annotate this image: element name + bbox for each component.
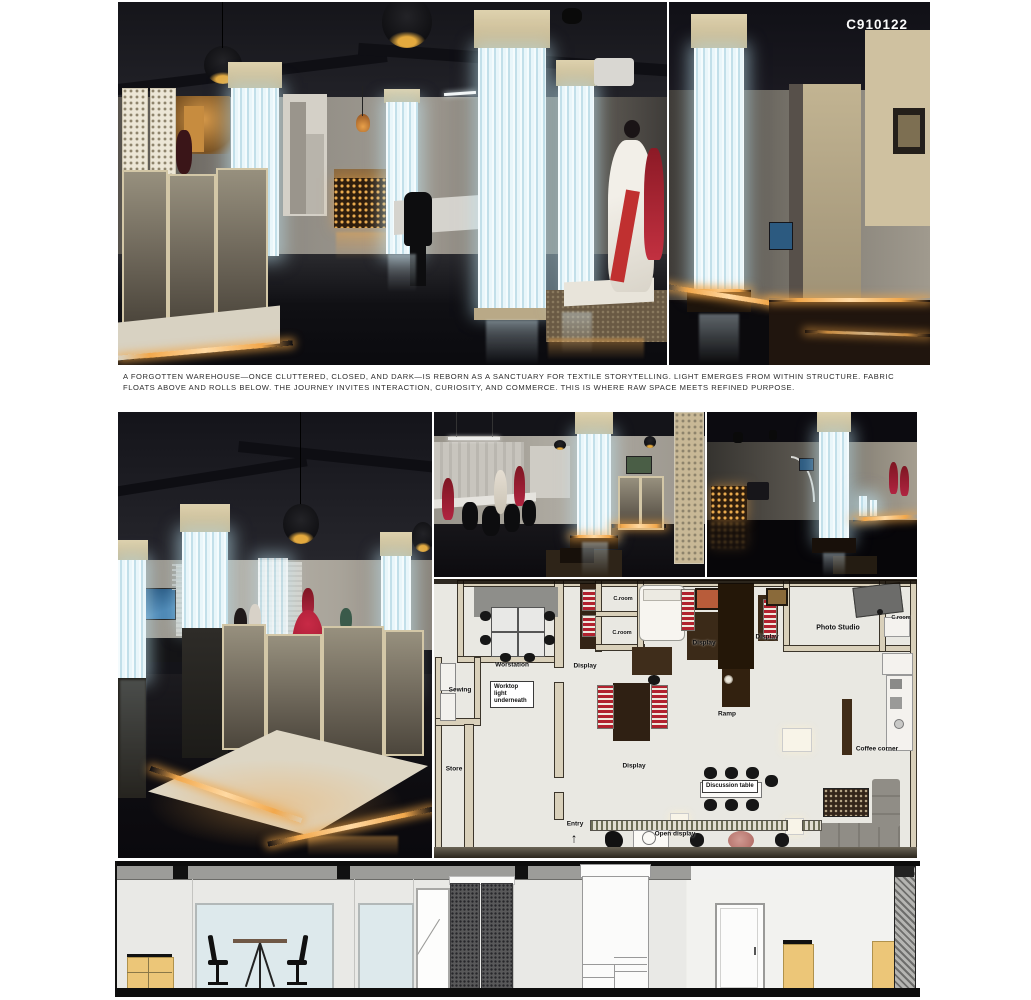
light-column (118, 560, 146, 678)
red-mannequin (889, 462, 898, 494)
catwalk-floor (613, 683, 650, 741)
wall-croom-left (596, 581, 601, 651)
ceiling (434, 412, 705, 436)
jali-screen-panel (450, 883, 480, 991)
chair (544, 611, 555, 621)
office-chair-silhouette (285, 935, 309, 989)
spotlight-icon (769, 430, 777, 440)
column-cap (180, 504, 230, 532)
mirror-door (416, 888, 450, 993)
corridor (306, 134, 324, 214)
project-code: C910122 (846, 17, 908, 32)
photo-middle-right (707, 412, 917, 577)
wood-cabinet (127, 957, 174, 991)
plan-label-croom-3: C.room (891, 615, 910, 621)
office-chair (522, 500, 536, 526)
picture-art (898, 115, 920, 147)
plan-label-croom-1: C.room (613, 596, 632, 602)
warm-reflection (548, 338, 644, 360)
wardrobe (582, 876, 649, 991)
garment-rack (582, 615, 596, 637)
plan-label-croom-2: C.room (612, 630, 631, 636)
glass-display-unit (216, 168, 268, 326)
jali-panel (150, 88, 176, 176)
column-reflection (823, 553, 845, 577)
column-plinth (474, 308, 550, 320)
wall-croom-div (596, 612, 642, 616)
photo-middle-left (118, 412, 432, 858)
framed-picture (626, 456, 652, 474)
photo-top-right: C910122 (669, 2, 930, 365)
wall-hall-2 (555, 683, 563, 777)
wall-joint-line (354, 879, 355, 989)
office-chair (462, 502, 478, 530)
plan-label-ramp: Ramp (718, 711, 736, 718)
chair (704, 799, 717, 811)
lamp-wire (456, 412, 457, 437)
garment-rack (582, 589, 596, 611)
sewing-table (440, 693, 456, 721)
wardrobe-divider (614, 964, 615, 989)
office-chair-silhouette (208, 935, 232, 989)
plan-label-store: Store (446, 766, 463, 773)
chair-pole (296, 965, 299, 982)
beam-block (173, 866, 188, 879)
column-cap (118, 540, 148, 560)
office-chair (404, 192, 432, 246)
appliance (890, 679, 902, 689)
caption-line-2: FLOATS ABOVE AND ROLLS BELOW. THE JOURNE… (123, 383, 795, 392)
wall-store-right (465, 725, 473, 851)
ramp-runway (718, 583, 754, 669)
chair (704, 767, 717, 779)
ramp-logo (724, 675, 733, 684)
chair (725, 767, 738, 779)
beige-partition (803, 84, 861, 334)
chair (765, 775, 778, 787)
column-cap (691, 14, 747, 48)
chair-back (299, 935, 309, 963)
plan-label-display-3: Display (755, 634, 778, 641)
lamp-cable (300, 412, 301, 506)
linear-lamp (448, 437, 500, 440)
jali-panel (122, 88, 148, 176)
floor-slab (115, 988, 920, 997)
garment-rack (597, 685, 614, 729)
table-pole (259, 943, 261, 989)
wall-workstation-left (458, 581, 463, 662)
warm-reflection (308, 836, 398, 856)
plan-label-worktop: Worktop light underneath (490, 681, 534, 708)
floor-plan-render: Worstation Display C.room C.room Display… (434, 579, 917, 858)
light-column (577, 434, 611, 538)
garment-rack (651, 685, 668, 729)
light-column (258, 558, 288, 634)
platform-edge-glow (769, 298, 930, 302)
white-sari-mannequin (494, 470, 507, 514)
chair (544, 635, 555, 645)
photo-middle-center (434, 412, 705, 577)
mannequin-hair (624, 120, 640, 138)
entry-arrow-icon: ↑ (571, 831, 578, 846)
chair-back (208, 935, 218, 963)
chair (480, 611, 491, 621)
wall-hall-3 (555, 793, 563, 819)
red-mannequin (900, 466, 909, 496)
wall-joint-line (513, 879, 514, 989)
lamp-cable (222, 2, 223, 48)
sofa-dark (747, 482, 769, 500)
red-mannequin (442, 478, 454, 520)
wood-pedestal (872, 941, 896, 991)
pendant-lamp-icon (412, 522, 432, 552)
blue-painting (799, 458, 814, 471)
appliance (890, 697, 902, 709)
chair (725, 799, 738, 811)
column-cap (228, 62, 282, 88)
jali-reflection (711, 522, 747, 548)
plan-bottom-shadow (434, 847, 917, 858)
door-inner-frame (720, 908, 758, 988)
wardrobe-drawer-line (582, 964, 647, 965)
lounge-pillow (643, 589, 681, 601)
plan-label-entry: Entry (567, 821, 584, 828)
partition-mirror-edge (789, 84, 803, 334)
plinth-glow (570, 535, 618, 538)
light-column (819, 432, 849, 540)
plan-label-photo-studio: Photo Studio (816, 625, 860, 632)
plan-label-discussion-table: Discussion table (702, 780, 758, 793)
chair (746, 799, 759, 811)
glow-pedestal (859, 496, 867, 516)
plan-top-shadow (434, 579, 917, 584)
column-cap (817, 412, 851, 432)
plan-label-coffee-corner: Coffee corner (856, 746, 898, 753)
caption-line-1: A FORGOTTEN WAREHOUSE—ONCE CLUTTERED, CL… (123, 372, 894, 381)
plan-label-sewing: Sewing (449, 687, 472, 694)
mirror-stand (618, 476, 641, 530)
glow-pedestal (870, 500, 877, 516)
rug (823, 788, 869, 817)
column-reflection (120, 680, 146, 798)
light-column (558, 86, 594, 310)
column-cap (474, 10, 550, 48)
platform-warm-glow (148, 732, 432, 852)
glass-partition (358, 903, 414, 993)
column-cap (575, 412, 613, 434)
wall-studio-bottom (784, 646, 917, 651)
board-caption: A FORGOTTEN WAREHOUSE—ONCE CLUTTERED, CL… (123, 372, 894, 393)
studio-camera (877, 609, 883, 615)
column-reflection (486, 320, 538, 365)
dark-garment (176, 130, 192, 174)
ac-unit (594, 58, 634, 86)
chair (480, 635, 491, 645)
spotlight-icon (733, 432, 743, 443)
plan-label-display-1: Display (573, 663, 596, 670)
column-reflection (388, 254, 416, 292)
chair-base (287, 982, 307, 985)
section-elevation-drawing (115, 861, 920, 998)
copper-pendant-icon (356, 114, 370, 132)
wall-sewing-right (475, 658, 480, 724)
garment-rack (681, 589, 695, 631)
mirror-floor-glow (612, 524, 666, 528)
blue-painting (144, 588, 176, 620)
desk (491, 607, 518, 632)
bar-counter (842, 699, 852, 755)
desk (518, 607, 545, 632)
glow-console (782, 728, 812, 752)
light-column-large (478, 48, 546, 312)
wardrobe-drawer-line (614, 957, 647, 958)
wardrobe-drawer-line (614, 971, 647, 972)
desk-reflection (336, 232, 390, 260)
pendant-lamp-icon (283, 504, 319, 544)
cabinet-artwork (766, 588, 788, 606)
sink (894, 719, 904, 729)
ceiling-band-white (691, 866, 908, 879)
jali-screen (674, 412, 704, 564)
office-chair (504, 504, 520, 532)
pendant-lamp-icon (554, 440, 566, 450)
red-mannequin (514, 466, 525, 506)
jali-screen-panel (481, 883, 513, 991)
column-cap (380, 532, 412, 556)
track-spotlight-icon (562, 8, 582, 24)
sofa (872, 779, 900, 827)
lamp-wire (492, 412, 493, 437)
wall-joint-line (192, 879, 193, 989)
glass-display-unit (122, 170, 168, 324)
column-plinth (812, 538, 856, 553)
lit-jali-desk (334, 178, 392, 228)
plan-label-workstation: Worstation (495, 662, 529, 669)
light-column (694, 48, 744, 290)
column-cap (384, 89, 420, 103)
beam-block (515, 866, 528, 879)
chair (746, 767, 759, 779)
window (530, 446, 570, 498)
mirror-stand (640, 476, 664, 530)
hatched-wall-section (894, 866, 916, 991)
design-board-page: { "board": { "code": "C910122" }, "capti… (0, 0, 1031, 1000)
chair-pole (216, 965, 219, 982)
reception-desk-top (334, 169, 392, 178)
column-reflection (699, 314, 739, 364)
column-reflection (582, 542, 608, 577)
wood-pedestal (783, 944, 814, 991)
chair-base (208, 982, 228, 985)
glass-display-unit (168, 174, 216, 326)
lit-jali-desk (711, 486, 747, 520)
blue-painting (769, 222, 793, 250)
door-leaf (290, 102, 306, 214)
plan-label-display-4: Display (622, 763, 645, 770)
coffee-counter (882, 653, 913, 675)
plan-label-open-display: Open display (655, 831, 696, 838)
photo-top-left (118, 2, 667, 365)
door-handle (754, 947, 756, 955)
cabinet-divider (127, 972, 172, 973)
red-mannequin (644, 148, 664, 260)
jali-wall-strip (802, 820, 822, 831)
jali-wall-strip (590, 820, 788, 831)
lamp-cable (362, 86, 363, 116)
stool (775, 833, 789, 847)
wardrobe-drawer-line (582, 977, 614, 978)
brown-table (632, 647, 672, 675)
pendant-lamp-icon (644, 436, 656, 448)
cabinet-divider (148, 957, 149, 989)
light-column (182, 532, 228, 628)
hatched-wall-top (894, 866, 914, 877)
column-cap (556, 60, 596, 86)
left-edge (115, 861, 117, 994)
plan-label-display-2: Display (692, 640, 715, 647)
chandelier-icon (172, 564, 182, 590)
beam-block (337, 866, 350, 879)
